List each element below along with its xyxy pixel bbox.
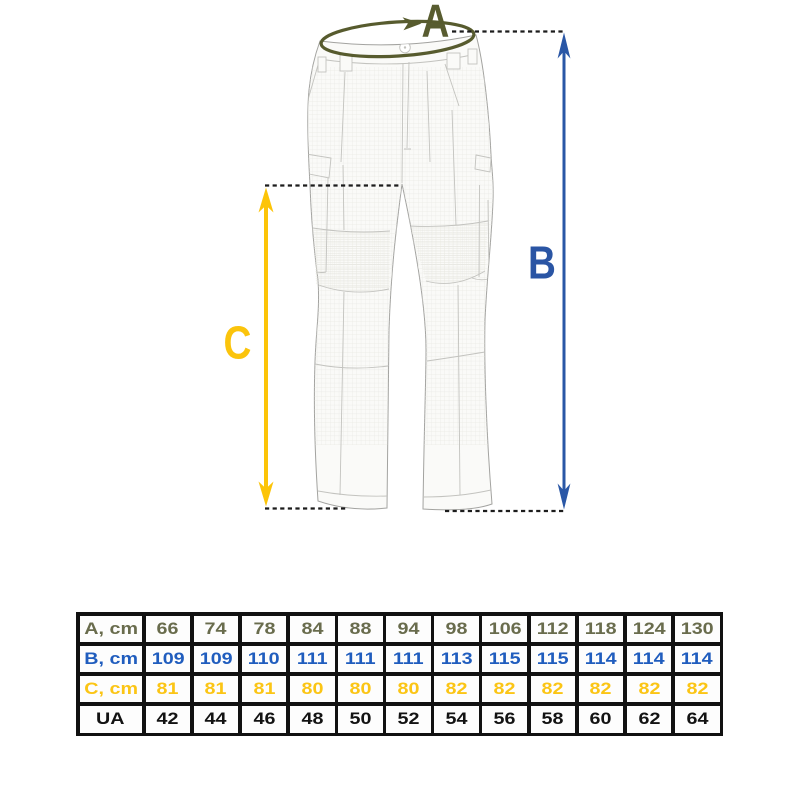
svg-text:B: B xyxy=(528,237,556,288)
svg-text:A: A xyxy=(422,0,450,46)
svg-text:C: C xyxy=(224,317,252,368)
